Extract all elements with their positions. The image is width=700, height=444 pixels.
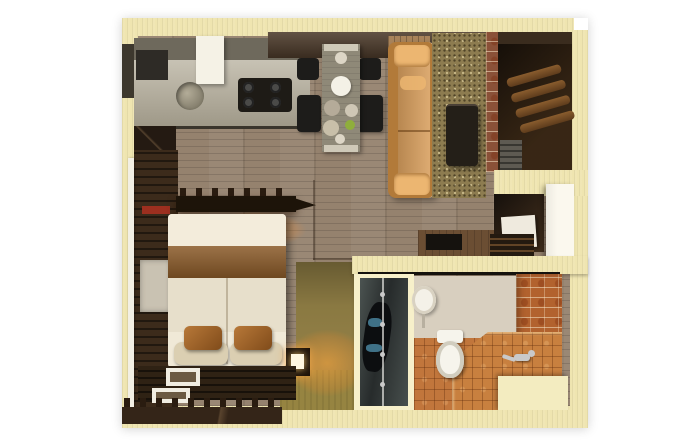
coffee-table: [446, 104, 478, 166]
sofa-headrest: [400, 76, 426, 90]
plate: [345, 104, 358, 117]
plate: [335, 134, 345, 144]
gas-stove: [238, 78, 292, 112]
shower-step-block: [498, 376, 568, 412]
clothes-blue-item: [366, 344, 382, 352]
desk-slat-tray: [490, 234, 534, 258]
bed: [168, 214, 286, 368]
floorplan: [122, 18, 588, 428]
bath-faucet: [500, 348, 536, 368]
wardrobe-glass-doors: [360, 278, 408, 406]
hanging-clothes: [359, 301, 394, 374]
toilet: [436, 330, 464, 380]
sofa-armrest: [394, 173, 430, 195]
range-hood: [196, 36, 224, 84]
crenellated-accent-wall: [122, 407, 282, 424]
coat-rack-slats: [506, 64, 580, 151]
entry-beam: [498, 32, 572, 44]
sofa-seat-split: [398, 130, 430, 132]
plate: [335, 52, 347, 64]
entry-door-open: [546, 184, 574, 266]
toilet-bowl: [436, 341, 464, 378]
door-hinge: [380, 292, 385, 297]
wash-basin-mirror: [412, 286, 436, 314]
dining-chair: [297, 95, 321, 132]
table-end-cap: [324, 44, 358, 51]
burner: [270, 97, 281, 108]
shoe-cabinet: [500, 140, 522, 170]
burner: [270, 82, 281, 93]
kitchen-sink: [176, 82, 204, 110]
refrigerator: [136, 50, 168, 80]
pillow-rust: [184, 326, 222, 350]
entry-hall: [498, 32, 572, 172]
door-hinge: [380, 352, 385, 357]
green-bowl: [345, 120, 355, 130]
sofa-seat: [398, 46, 430, 194]
wardrobe-red-item: [142, 206, 170, 214]
plate: [323, 120, 339, 136]
bed-runner: [168, 246, 286, 278]
basin-stand: [422, 314, 425, 328]
plate: [324, 100, 340, 116]
table-end-cap: [324, 145, 358, 152]
burner: [243, 97, 254, 108]
peg-shelf: [176, 196, 296, 212]
corner-notch: [574, 18, 588, 30]
desk-objects: [426, 234, 462, 250]
brick-partition: [486, 32, 498, 172]
wall-shelf-left: [122, 44, 134, 98]
desk: [418, 230, 494, 258]
bed-duvet-top: [168, 214, 286, 248]
picture-frame: [166, 368, 200, 386]
burner: [243, 82, 254, 93]
plate: [331, 76, 351, 96]
door-hinge: [380, 322, 385, 327]
dining-chair: [357, 95, 383, 132]
floor-marking-line: [313, 180, 315, 260]
dining-chair: [359, 58, 381, 80]
bathroom-wardrobe-frame: [354, 274, 414, 412]
faucet-handle: [528, 350, 535, 357]
sofa-armrest: [394, 45, 430, 67]
dining-chair: [297, 58, 319, 80]
window-track: [128, 158, 134, 408]
pillow-rust: [234, 326, 272, 350]
dining-table: [322, 44, 360, 152]
door-hinge: [380, 382, 385, 387]
sofa: [388, 42, 436, 198]
